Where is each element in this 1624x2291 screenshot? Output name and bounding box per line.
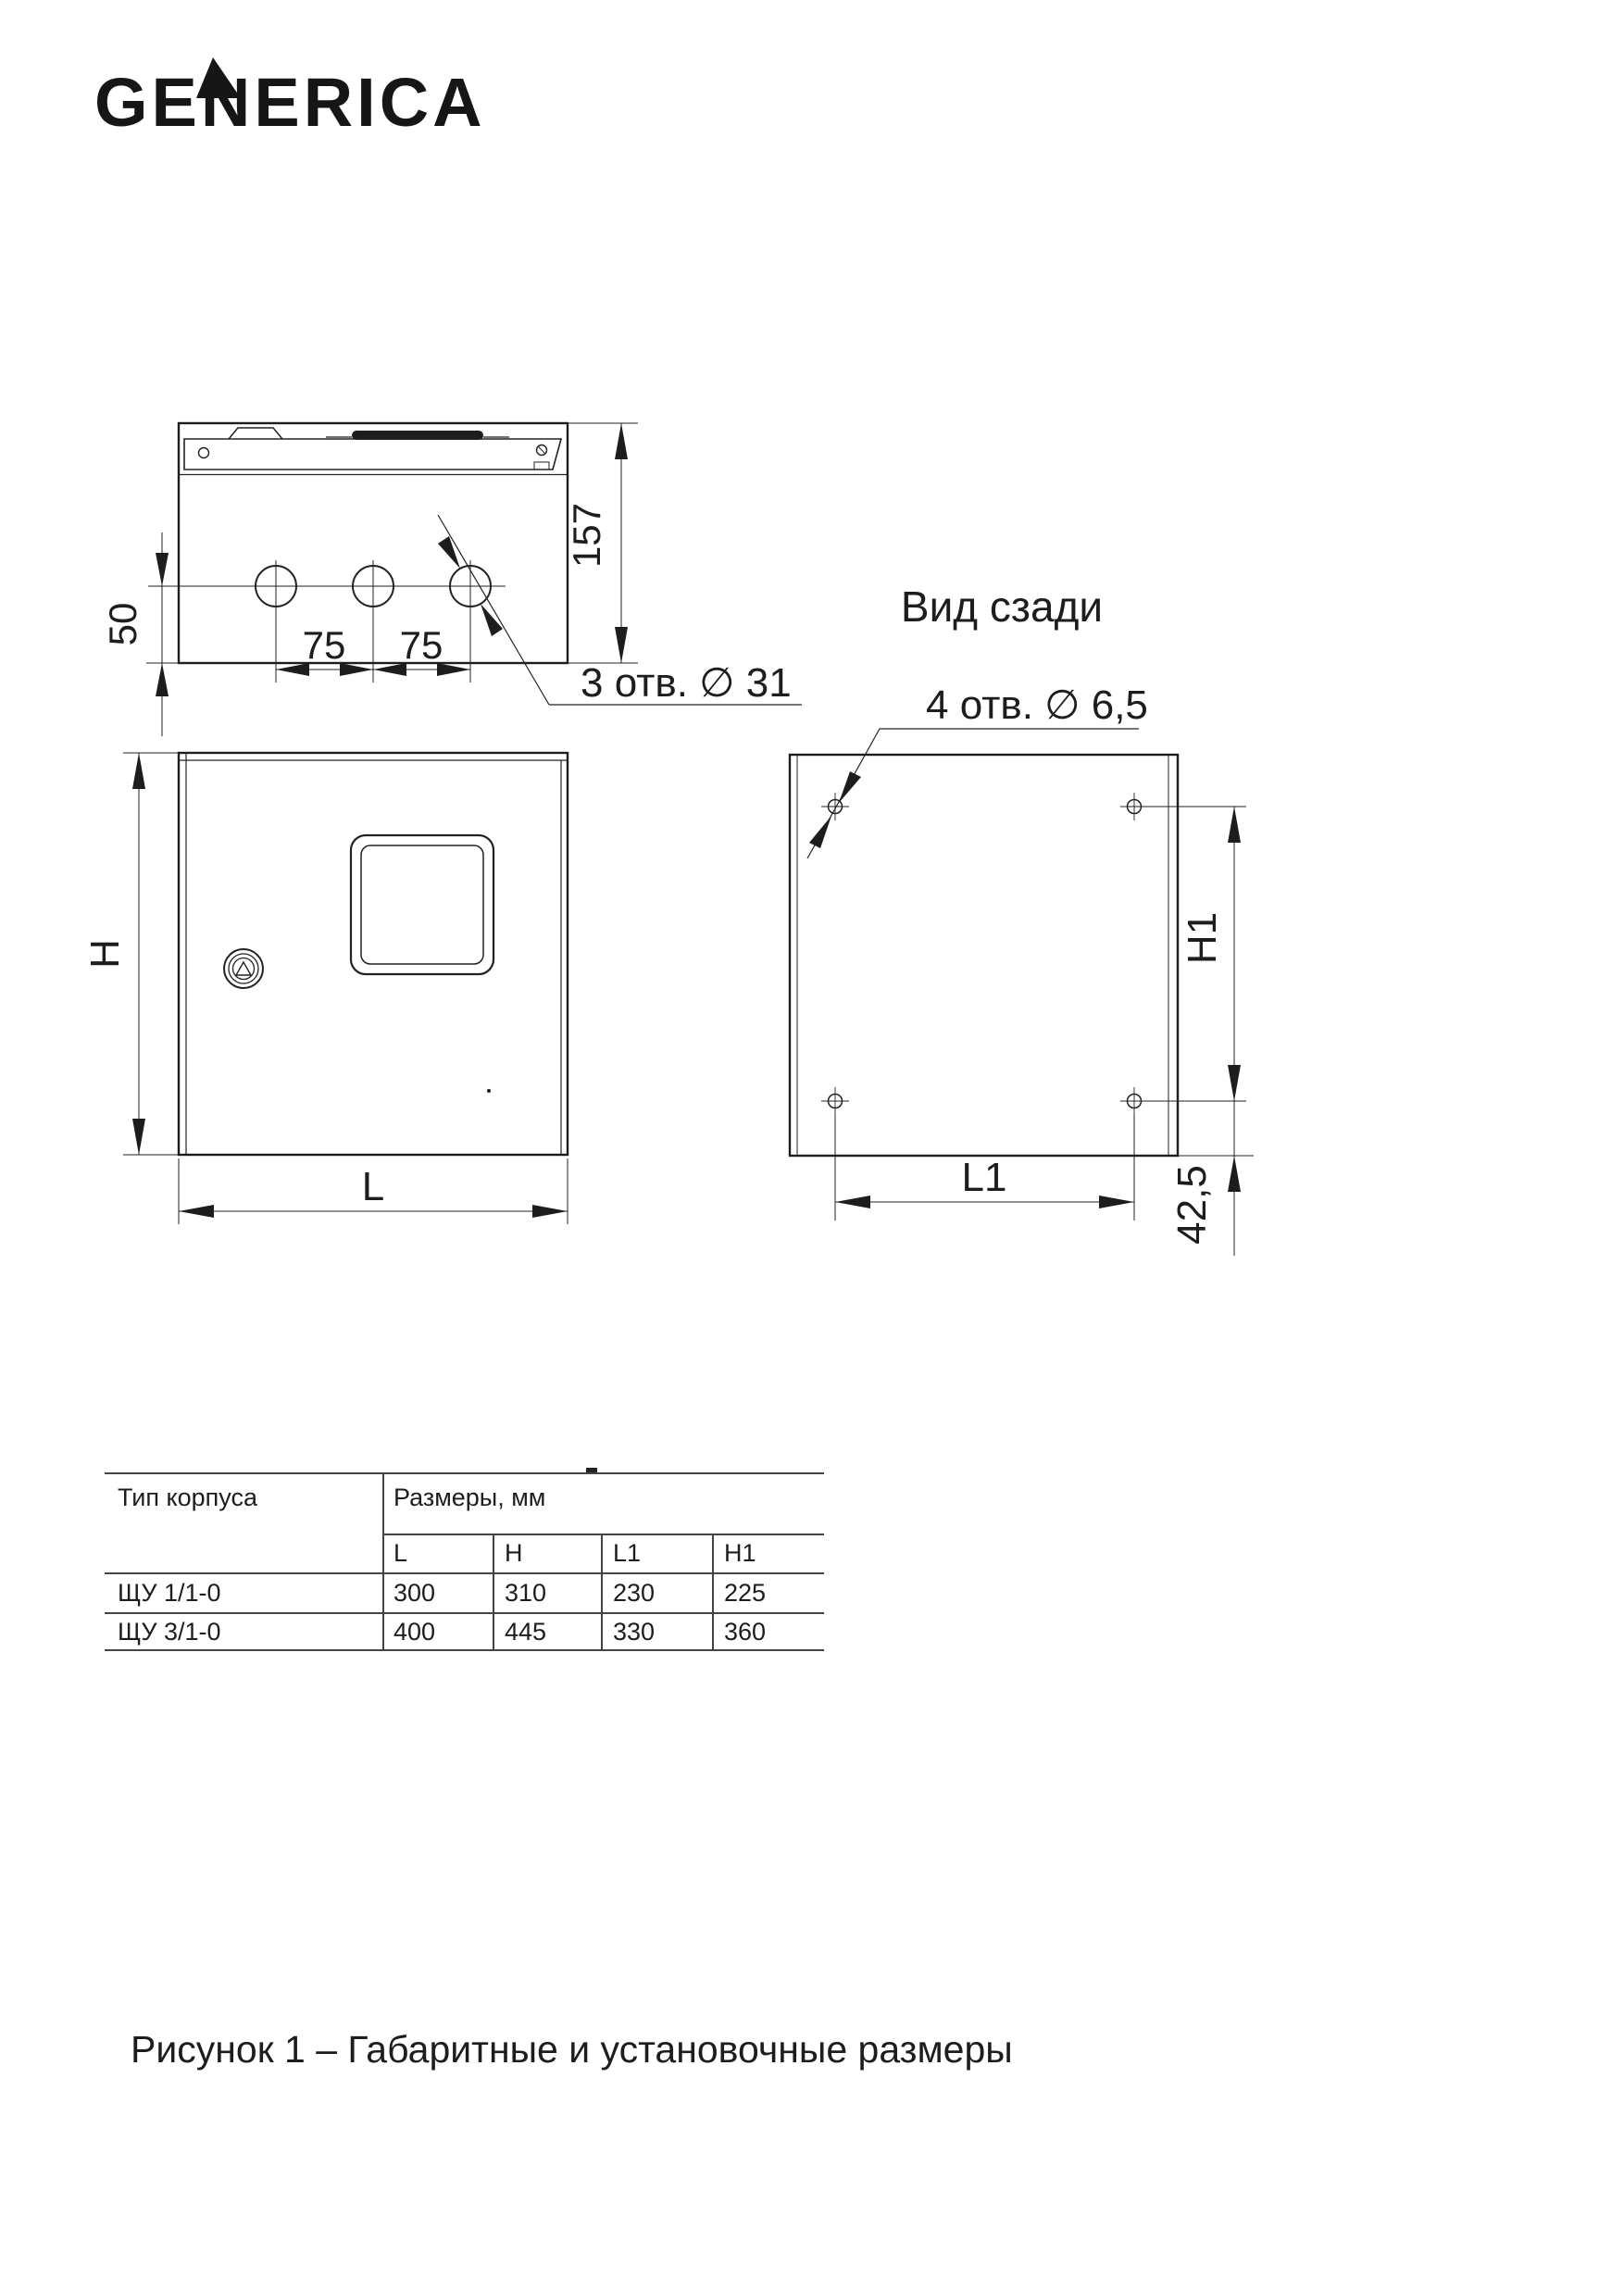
table-row2-type: ЩУ 3/1-0 — [118, 1618, 221, 1646]
dim-label-50: 50 — [101, 603, 144, 646]
table-header-type: Тип корпуса — [118, 1484, 257, 1512]
table-row1-type: ЩУ 1/1-0 — [118, 1579, 221, 1608]
drawing-canvas: 50 157 75 75 3 отв. ∅ 31 — [0, 0, 1624, 2291]
dim-label-42-5: 42,5 — [1169, 1165, 1215, 1245]
table-subheader-H: H — [505, 1539, 523, 1568]
dim-label-157: 157 — [565, 503, 608, 568]
table-subheader-H1: H1 — [724, 1539, 756, 1568]
dim-label-75-right: 75 — [400, 623, 443, 667]
table-row1-L: 300 — [394, 1579, 435, 1608]
table-subheader-L: L — [394, 1539, 407, 1568]
rear-view-drawing: Вид сзади — [790, 582, 1254, 1256]
holes-label-3x31: 3 отв. ∅ 31 — [581, 660, 792, 706]
dim-label-H: H — [82, 939, 128, 969]
dim-label-75-left: 75 — [303, 623, 346, 667]
top-view-drawing: 50 157 75 75 3 отв. ∅ 31 — [101, 423, 802, 736]
figure-caption: Рисунок 1 – Габаритные и установочные ра… — [131, 2028, 1013, 2072]
rear-view-title: Вид сзади — [901, 582, 1103, 631]
dim-label-L1: L1 — [962, 1155, 1007, 1200]
table-row1-H: 310 — [505, 1579, 546, 1608]
table-row2-H: 445 — [505, 1618, 546, 1646]
table-subheader-L1: L1 — [613, 1539, 641, 1568]
dim-label-L: L — [362, 1164, 384, 1209]
table-row1-L1: 230 — [613, 1579, 655, 1608]
table-row1-H1: 225 — [724, 1579, 766, 1608]
table-row2-L1: 330 — [613, 1618, 655, 1646]
holes-label-4x65: 4 отв. ∅ 6,5 — [926, 682, 1148, 728]
front-view-drawing: H L — [82, 753, 568, 1224]
table-row2-H1: 360 — [724, 1618, 766, 1646]
table-header-sizes: Размеры, мм — [394, 1484, 545, 1512]
datasheet-page: GENERICA — [0, 0, 1624, 2291]
dim-label-H1: H1 — [1180, 912, 1225, 964]
table-row2-L: 400 — [394, 1618, 435, 1646]
dimensions-table: Тип корпуса Размеры, мм L H L1 H1 ЩУ 1/1… — [105, 1472, 824, 1653]
